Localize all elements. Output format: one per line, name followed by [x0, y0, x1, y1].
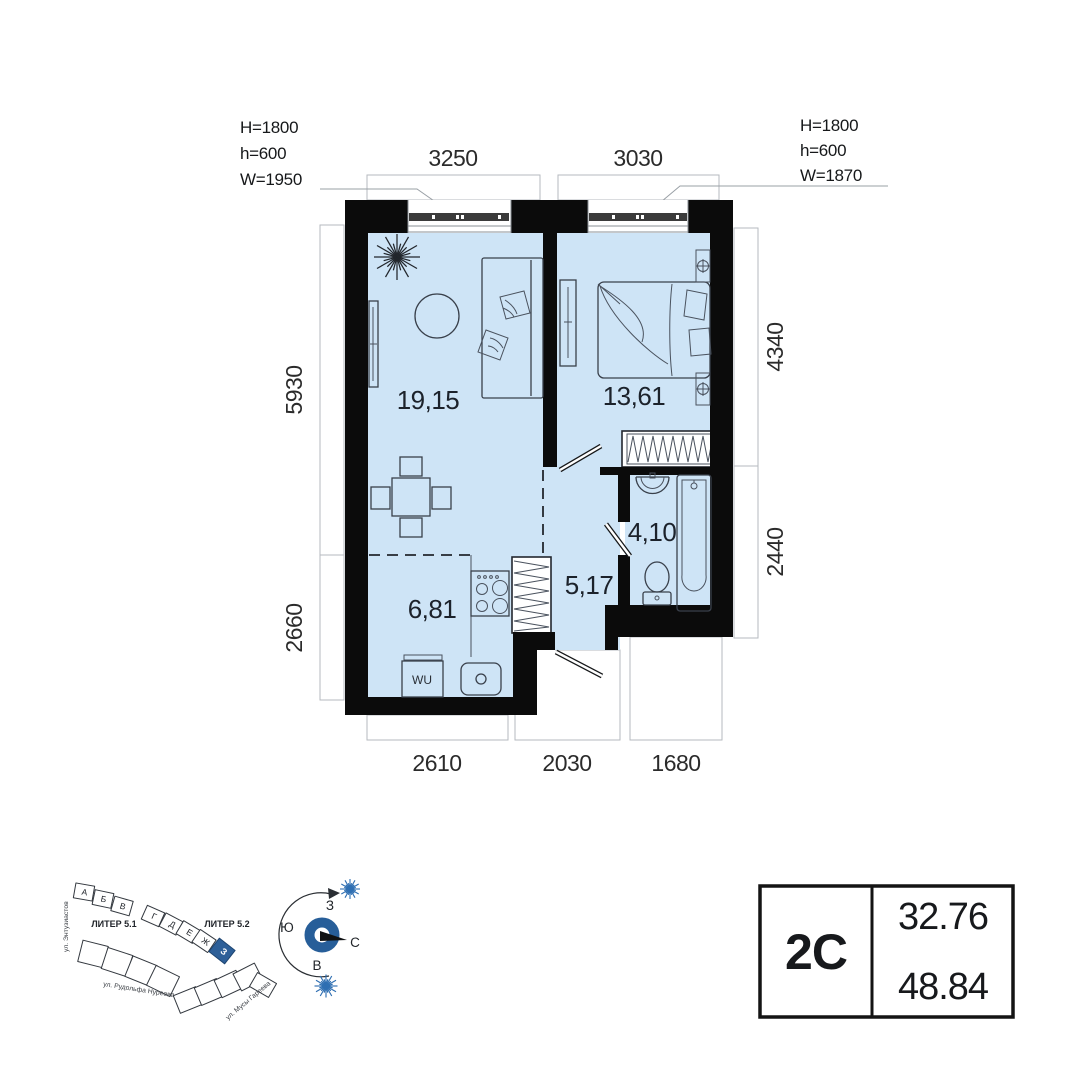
- liter-left-label: ЛИТЕР 5.1: [91, 919, 136, 929]
- washing-machine-label: WU: [412, 673, 432, 687]
- summary-table: 2С 32.76 48.84: [760, 886, 1013, 1017]
- spec-left-h: h=600: [240, 144, 286, 163]
- hall-closet-icon: [512, 557, 551, 633]
- dim-bottom-bath: 1680: [651, 750, 700, 776]
- dim-left-upper: 5930: [281, 365, 307, 414]
- wardrobe-icon: [622, 431, 722, 467]
- street-left-label: ул. Энтузиастов: [63, 901, 70, 952]
- window-spec-left: H=1800 h=600 W=1950: [240, 118, 302, 189]
- dim-top-bedroom: 3030: [613, 145, 662, 171]
- area-label-hallway: 5,17: [565, 570, 614, 600]
- window-spec-right: H=1800 h=600 W=1870: [800, 116, 862, 185]
- dim-bottom-hall: 2030: [542, 750, 591, 776]
- dim-top-living: 3250: [428, 145, 477, 171]
- sun-bottom-icon: [315, 975, 338, 998]
- area-label-bathroom: 4,10: [628, 517, 677, 547]
- area-label-bedroom: 13,61: [603, 381, 666, 411]
- dim-bottom-kitchen: 2610: [412, 750, 461, 776]
- compass-north: С: [350, 935, 360, 950]
- compass: З Ю В С: [279, 879, 360, 998]
- liter-right-label: ЛИТЕР 5.2: [204, 919, 249, 929]
- area-label-kitchen: 6,81: [408, 594, 457, 624]
- sun-top-icon: [340, 879, 360, 899]
- dim-right-upper: 4340: [762, 322, 788, 371]
- door-entrance: [556, 652, 602, 676]
- apartment-type-label: 2С: [785, 924, 847, 980]
- spec-left-W: W=1950: [240, 170, 302, 189]
- living-area-value: 32.76: [898, 896, 988, 938]
- window-living: [408, 200, 511, 233]
- dim-right-lower: 2440: [762, 527, 788, 576]
- area-label-living: 19,15: [397, 385, 460, 415]
- dim-left-lower: 2660: [281, 603, 307, 652]
- compass-west: З: [326, 898, 334, 913]
- spec-left-H: H=1800: [240, 118, 298, 137]
- floor-plan-canvas: WU: [0, 0, 1080, 1080]
- spec-right-H: H=1800: [800, 116, 858, 135]
- window-bedroom: [588, 200, 688, 233]
- spec-right-h: h=600: [800, 141, 846, 160]
- compass-east: В: [312, 958, 321, 973]
- total-area-value: 48.84: [898, 966, 989, 1008]
- spec-right-W: W=1870: [800, 166, 862, 185]
- site-map: А Б В Г Д Е Ж З ЛИТЕР 5.1 ЛИТЕР 5.2 ул. …: [63, 883, 277, 1022]
- compass-south: Ю: [280, 920, 294, 935]
